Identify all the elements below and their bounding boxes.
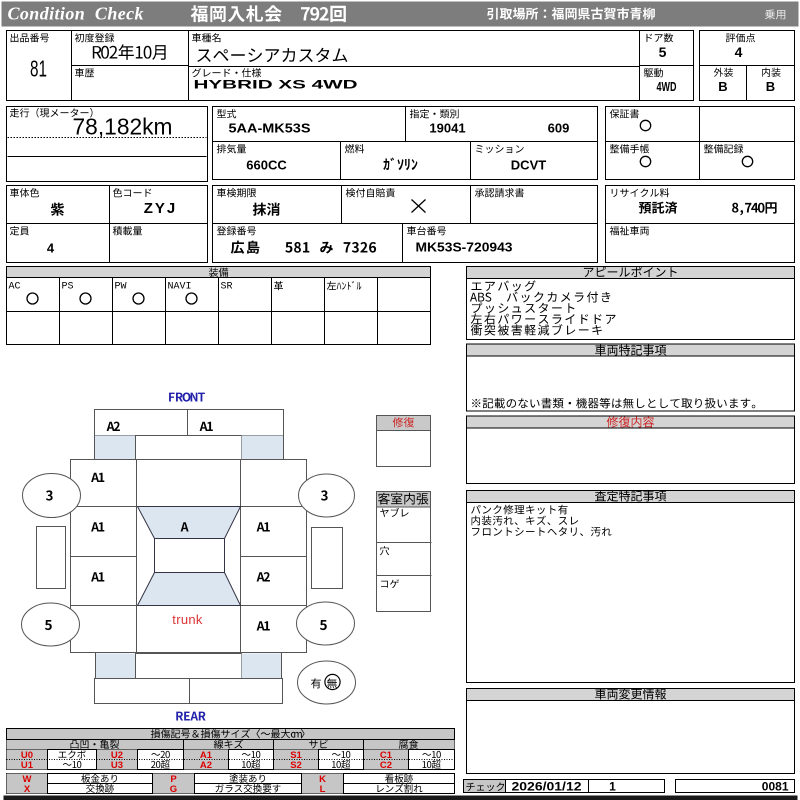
svg-text:1: 1 xyxy=(609,780,616,794)
svg-text:ZYJ: ZYJ xyxy=(144,200,178,217)
svg-text:MK53S-720943: MK53S-720943 xyxy=(416,240,513,255)
svg-text:C2: C2 xyxy=(380,760,392,771)
svg-text:19041: 19041 xyxy=(429,121,465,136)
svg-text:NAVI: NAVI xyxy=(168,282,192,293)
svg-text:78,182km: 78,182km xyxy=(73,114,173,140)
svg-text:U1: U1 xyxy=(21,760,34,771)
svg-text:4: 4 xyxy=(47,241,55,256)
svg-text:0081: 0081 xyxy=(762,780,789,794)
svg-text:609: 609 xyxy=(548,121,570,136)
svg-text:X: X xyxy=(24,784,31,795)
svg-text:4: 4 xyxy=(735,44,743,60)
svg-text:5: 5 xyxy=(659,44,667,60)
svg-text:DCVT: DCVT xyxy=(511,158,546,173)
svg-text:L: L xyxy=(320,784,326,795)
svg-text:81: 81 xyxy=(30,56,47,82)
svg-text:4WD: 4WD xyxy=(657,80,677,94)
svg-text:S2: S2 xyxy=(290,760,302,771)
svg-text:2026/01/12: 2026/01/12 xyxy=(512,780,582,794)
svg-text:B: B xyxy=(718,79,727,94)
svg-text:AC: AC xyxy=(9,282,21,293)
svg-text:U3: U3 xyxy=(111,760,123,771)
svg-text:Condition Check: Condition Check xyxy=(8,4,144,24)
svg-text:5AA-MK53S: 5AA-MK53S xyxy=(229,121,311,136)
svg-text:B: B xyxy=(766,79,775,94)
svg-text:PS: PS xyxy=(62,282,74,293)
svg-text:HYBRID XS 4WD: HYBRID XS 4WD xyxy=(194,78,359,92)
svg-text:PW: PW xyxy=(115,282,127,293)
svg-text:660CC: 660CC xyxy=(246,158,287,173)
svg-text:G: G xyxy=(170,784,177,795)
svg-text:A2: A2 xyxy=(200,760,212,771)
svg-text:SR: SR xyxy=(221,282,233,293)
svg-text:trunk: trunk xyxy=(172,612,203,627)
